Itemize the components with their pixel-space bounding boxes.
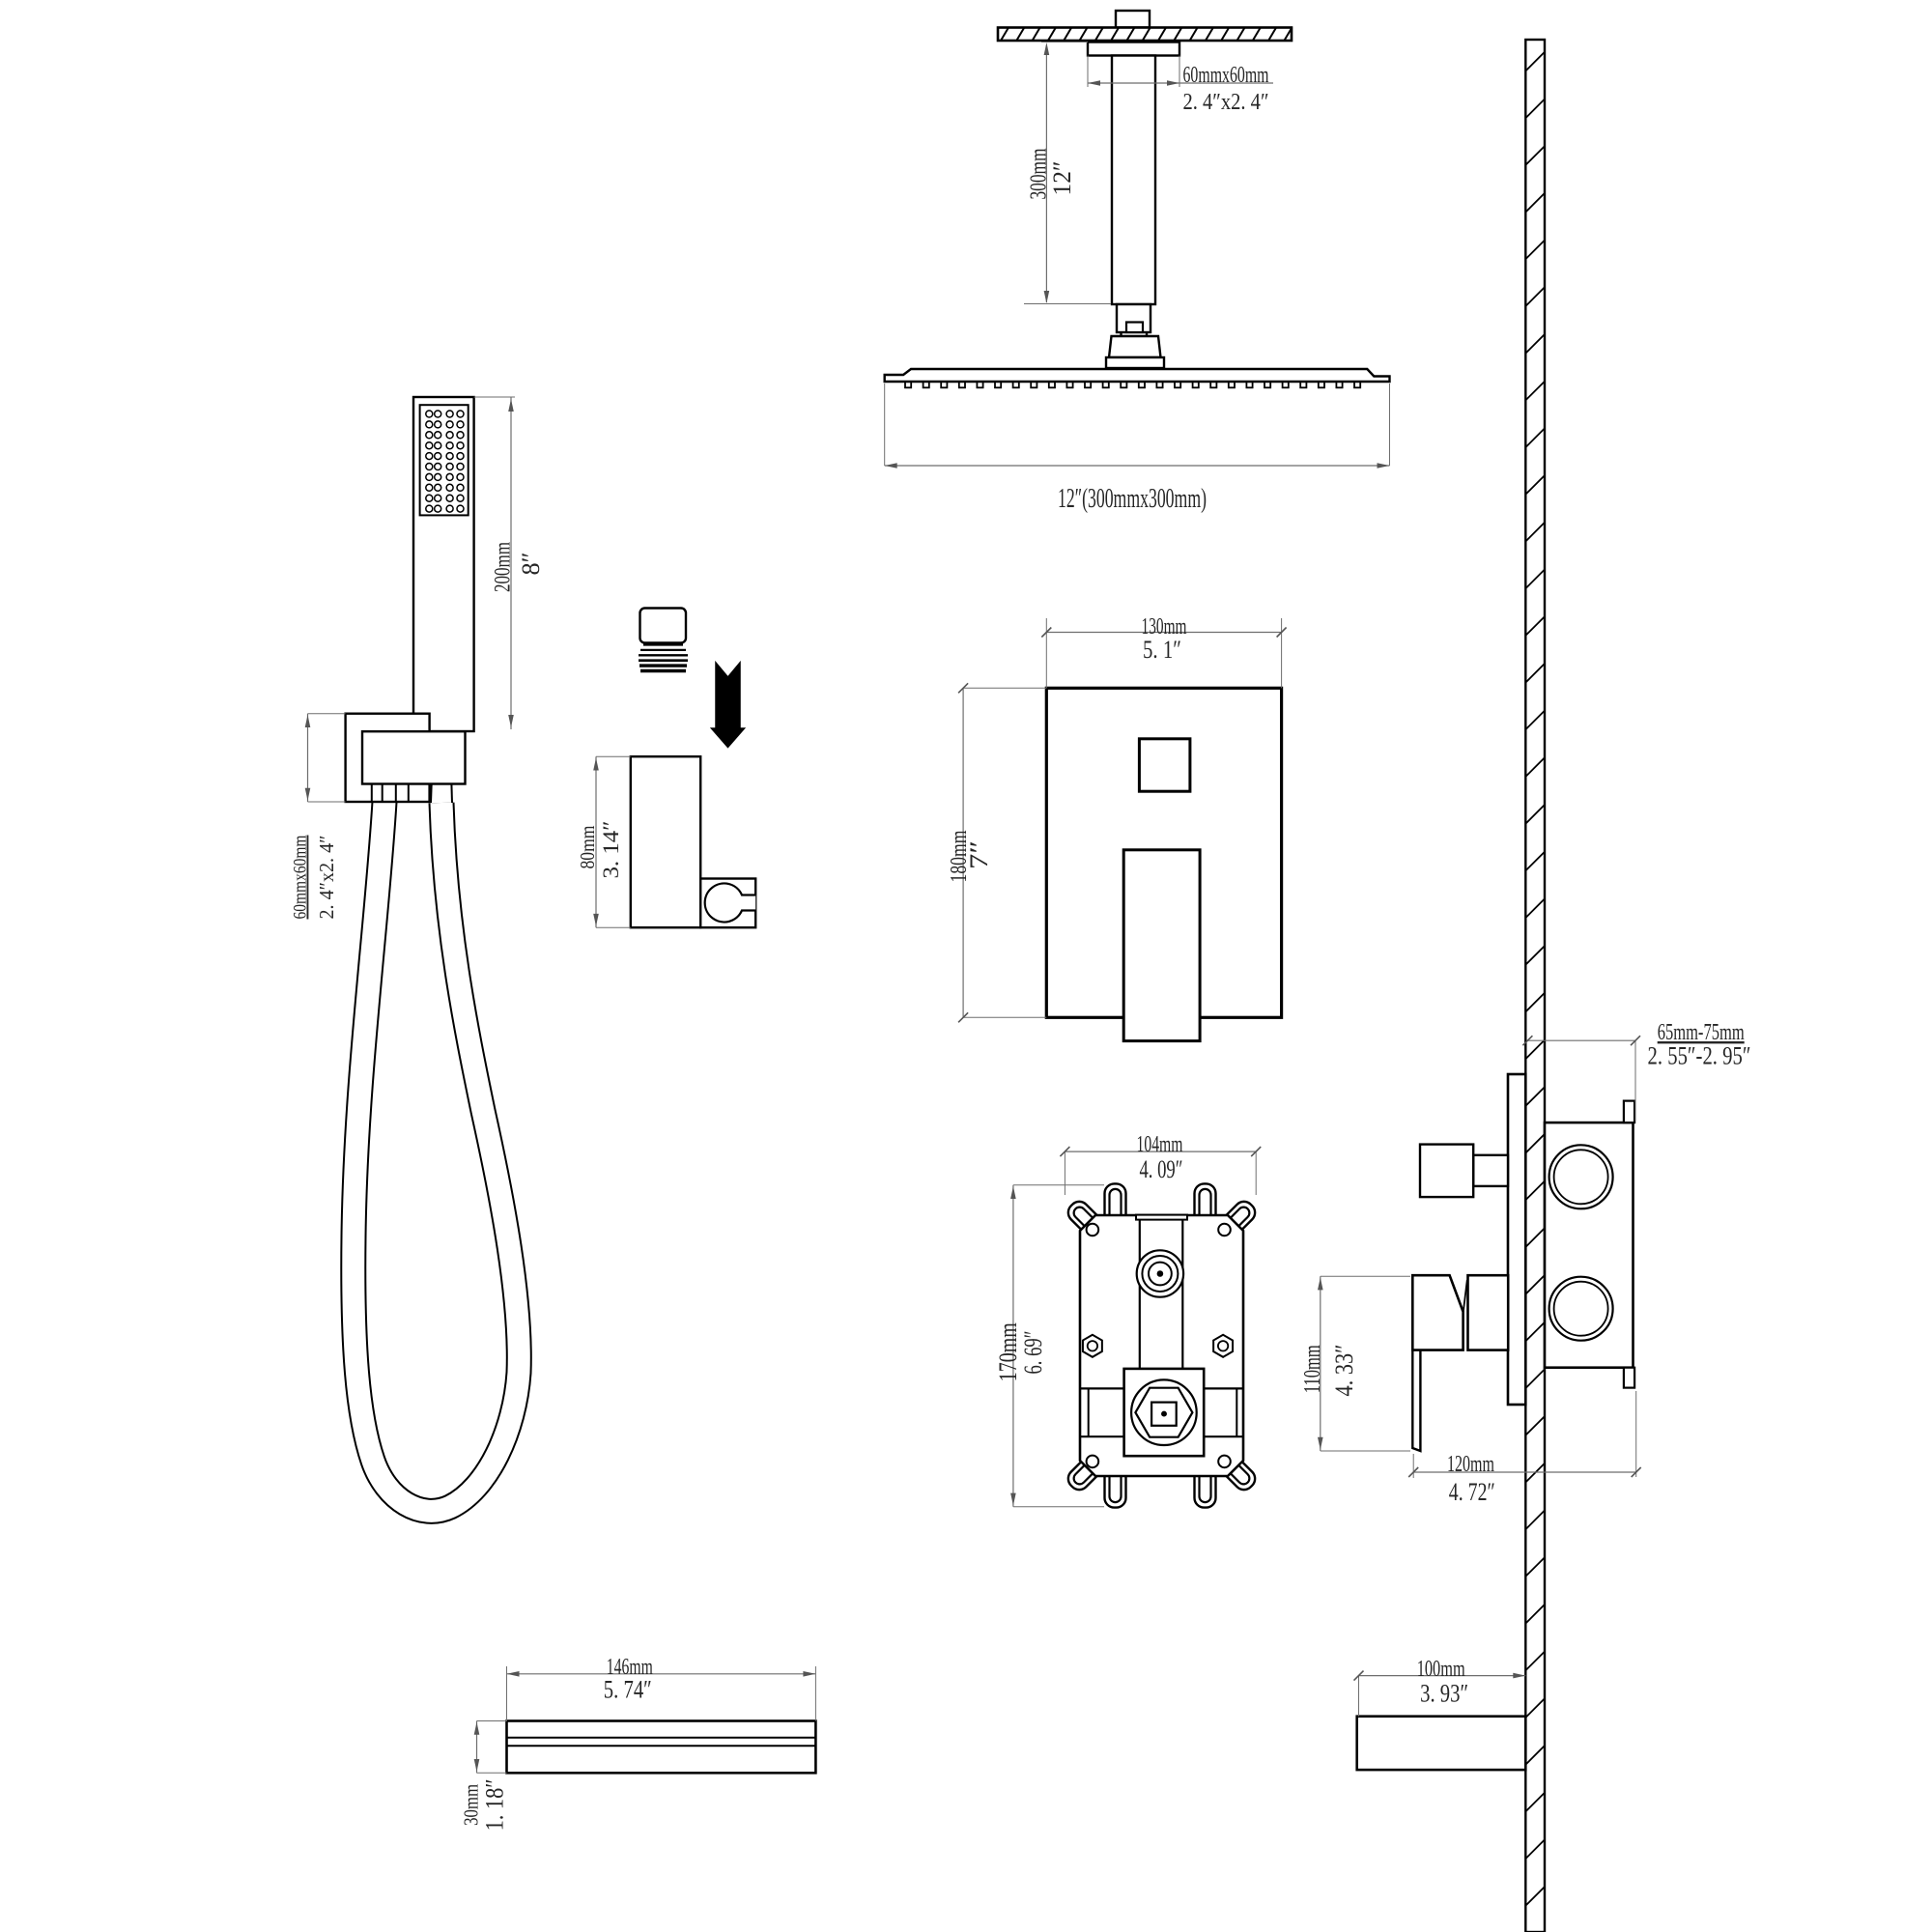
svg-text:110mm: 110mm (1300, 1345, 1325, 1393)
svg-text:4. 72″: 4. 72″ (1449, 1478, 1495, 1506)
svg-text:12″: 12″ (1048, 161, 1076, 196)
svg-text:104mm: 104mm (1137, 1132, 1183, 1157)
svg-text:4. 09″: 4. 09″ (1140, 1155, 1183, 1183)
svg-text:2. 55″-2. 95″: 2. 55″-2. 95″ (1648, 1042, 1751, 1070)
svg-text:100mm: 100mm (1417, 1657, 1465, 1682)
svg-text:2. 4″x2. 4″: 2. 4″x2. 4″ (1183, 90, 1269, 115)
svg-text:2. 4″x2. 4″: 2. 4″x2. 4″ (315, 836, 338, 920)
svg-text:1. 18″: 1. 18″ (480, 1778, 508, 1831)
svg-text:80mm: 80mm (576, 826, 599, 869)
svg-text:200mm: 200mm (491, 542, 515, 592)
svg-text:5. 1″: 5. 1″ (1143, 636, 1181, 664)
svg-text:60mmx60mm: 60mmx60mm (1183, 63, 1269, 88)
svg-text:8″: 8″ (517, 553, 545, 576)
svg-text:3. 14″: 3. 14″ (599, 821, 623, 879)
svg-text:6. 69″: 6. 69″ (1019, 1331, 1047, 1375)
svg-text:12″(300mmx300mm): 12″(300mmx300mm) (1058, 484, 1207, 514)
svg-text:30mm: 30mm (460, 1784, 483, 1826)
svg-text:120mm: 120mm (1447, 1452, 1494, 1477)
svg-text:3. 93″: 3. 93″ (1420, 1680, 1468, 1708)
svg-text:7″: 7″ (965, 840, 993, 869)
svg-text:170mm: 170mm (994, 1322, 1022, 1381)
svg-text:4. 33″: 4. 33″ (1330, 1345, 1358, 1397)
svg-text:60mmx60mm: 60mmx60mm (291, 835, 311, 919)
svg-text:5. 74″: 5. 74″ (604, 1676, 652, 1704)
